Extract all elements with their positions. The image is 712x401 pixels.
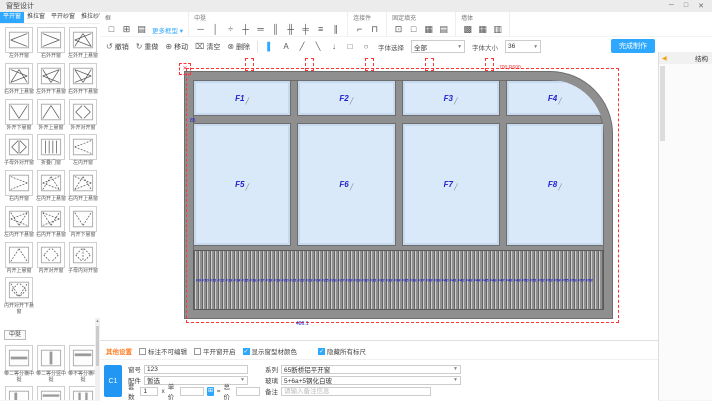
chevron-down-icon: ▼ xyxy=(453,366,458,372)
selection-tick xyxy=(425,58,434,71)
window-type-item[interactable]: 外开下悬窗 xyxy=(4,99,34,132)
window-type-label: 右内开窗 xyxy=(4,197,34,203)
glass-label: 玻璃 xyxy=(265,375,278,385)
edit-mark-icon: ╱ xyxy=(558,98,562,105)
structure-panel-title: 结构 xyxy=(695,53,712,63)
frame-interior: F1╱F2╱F3╱F4╱ F5╱F6╱F7╱F8╱ F9 F10 F11 F12… xyxy=(193,80,604,310)
mullion-type-label: 带二等分竖中挺 xyxy=(36,372,66,384)
backslash-line-tool-icon[interactable]: ╲ xyxy=(313,42,323,51)
multiply-sign: x xyxy=(161,388,164,395)
wall-brick-icon[interactable]: ▦ xyxy=(476,23,489,36)
window-type-item[interactable]: 内开对开窗 xyxy=(36,242,66,275)
window-type-item[interactable]: 内开上悬窗 xyxy=(4,242,34,275)
font-size-dropdown[interactable]: 36 ▼ xyxy=(505,40,541,53)
panel-label: F1 xyxy=(235,94,244,103)
move-button[interactable]: ⊕移动 xyxy=(165,42,188,52)
action-label: 重做 xyxy=(144,42,158,52)
window-type-item[interactable]: 右外开下悬窗 xyxy=(68,63,98,96)
mullion-type-thumbnail xyxy=(5,345,33,371)
toolbar-group-caption: 框 xyxy=(105,13,183,22)
corner-dimension-text: 700,R600 xyxy=(499,65,521,71)
panel-label: F2 xyxy=(339,94,348,103)
toolbar-group-caption: 墙体 xyxy=(461,13,504,22)
window-type-label: 子母内对开窗 xyxy=(68,269,98,275)
window-type-thumbnail xyxy=(5,27,33,53)
checkbox-icon xyxy=(194,348,201,355)
sidebar-tab[interactable]: 推拉窗 xyxy=(24,12,48,23)
toolbar-group-caption: 中挺 xyxy=(194,13,342,22)
window-tag-badge: C1 xyxy=(104,365,122,397)
action-buttons: ↺撤销↻重做⊕移动⌧清空⊗删除 xyxy=(106,42,250,52)
calc-icon[interactable]: ⊞ xyxy=(207,387,214,396)
fixed-panel-icon[interactable]: □ xyxy=(407,23,420,36)
font-select-dropdown[interactable]: 全部 ▼ xyxy=(411,40,465,53)
frame-preset-icon[interactable]: ▤ xyxy=(135,23,148,36)
finish-button[interactable]: 完成制作 xyxy=(611,39,655,53)
total-label: 总价 xyxy=(224,381,233,401)
fill-hatch-icon[interactable]: ▦ xyxy=(422,23,435,36)
undo-button[interactable]: ↺撤销 xyxy=(106,42,129,52)
window-type-item[interactable]: 左外开上悬窗 xyxy=(68,27,98,60)
mullion-double-horizontal-plus-icon[interactable]: ╪ xyxy=(299,23,312,36)
properties-panel: 其他设置 标注不可编辑平开窗开启✓显示窗型材颜色✓隐藏所有标尺 C1 窗号 配件… xyxy=(100,340,658,401)
glass-panel-F4[interactable]: F4╱ xyxy=(506,80,604,116)
mullion-type-thumbnail xyxy=(69,345,97,371)
mullion-divide-icon[interactable]: ÷ xyxy=(224,23,237,36)
remark-input[interactable] xyxy=(281,387,431,396)
mullion-type-item[interactable]: 带不等分竖中挺 xyxy=(4,386,34,400)
fill-lines-icon[interactable]: ▤ xyxy=(437,23,450,36)
glass-panel-F5[interactable]: F5╱ xyxy=(193,123,291,246)
selection-tick xyxy=(245,58,254,71)
mullion-triple-icon[interactable]: ≡ xyxy=(314,23,327,36)
structure-panel-scrollbar[interactable] xyxy=(660,66,665,141)
circle-tool-icon[interactable]: ○ xyxy=(361,42,371,51)
display-option-checkbox[interactable]: ✓隐藏所有标尺 xyxy=(318,346,366,356)
selection-tick xyxy=(305,58,314,71)
clear-button[interactable]: ⌧清空 xyxy=(195,42,220,52)
window-type-item[interactable]: 子母外对开窗 xyxy=(4,134,34,167)
mullion-type-thumbnail xyxy=(37,386,65,400)
wall-grid-icon[interactable]: ▩ xyxy=(461,23,474,36)
settings-label: 其他设置 xyxy=(106,346,132,356)
window-type-item[interactable]: 右外开上悬窗 xyxy=(4,63,34,96)
window-type-item[interactable]: 折叠门窗 xyxy=(36,134,66,167)
fixed-glass-icon[interactable]: ⊡ xyxy=(392,23,405,36)
font-select-label: 字体选择 xyxy=(378,42,404,52)
window-type-label: 右外开窗 xyxy=(36,54,66,60)
louver-panel[interactable]: F9 F10 F11 F12 F13 F14 F15 F16 F17 F18 F… xyxy=(193,250,604,310)
window-type-thumbnail xyxy=(5,206,33,232)
window-type-thumbnail xyxy=(5,242,33,268)
checkbox-label: 显示窗型材颜色 xyxy=(252,346,298,356)
toolbar-group-框: 框□⊞▤更多框型 ▾ xyxy=(100,12,189,36)
chevron-down-icon: ▼ xyxy=(533,44,538,50)
window-no-label: 窗号 xyxy=(128,364,141,374)
mullion-type-item[interactable]: 带三等分横中挺 xyxy=(36,386,66,400)
font-size-label: 字体大小 xyxy=(472,42,498,52)
window-type-item[interactable]: 右内开上悬窗 xyxy=(68,170,98,203)
window-type-thumbnail xyxy=(37,99,65,125)
toolbar-group-墙体: 墙体▩▦▥ xyxy=(456,12,510,36)
slash-line-tool-icon[interactable]: ╱ xyxy=(297,42,307,51)
mullion-section-header: 中挺 xyxy=(4,323,98,341)
toolbar-divider xyxy=(257,41,258,53)
mullion-double-vertical-icon[interactable]: ║ xyxy=(269,23,282,36)
window-type-label: 子母外对开窗 xyxy=(4,161,34,167)
display-option-checkbox[interactable]: ✓显示窗型材颜色 xyxy=(243,346,298,356)
form-left-column: 窗号 配件 暂选 ▼ 套数 x 单价 ⊞ = 总价 xyxy=(128,364,260,397)
panel-label: F8 xyxy=(548,180,557,189)
mullion-type-thumbnail xyxy=(69,386,97,400)
series-label: 系列 xyxy=(265,364,278,374)
edit-mark-icon: ╱ xyxy=(245,184,249,191)
window-type-item[interactable]: 左内开上悬窗 xyxy=(36,170,66,203)
panel-label: F5 xyxy=(235,180,244,189)
window-frame[interactable]: F1╱F2╱F3╱F4╱ F5╱F6╱F7╱F8╱ F9 F10 F11 F12… xyxy=(185,72,612,318)
checkbox-icon xyxy=(139,348,146,355)
window-type-label: 折叠门窗 xyxy=(36,161,66,167)
louver-panel-labels: F9 F10 F11 F12 F13 F14 F15 F16 F17 F18 F… xyxy=(196,278,601,283)
window-type-label: 右内开下悬窗 xyxy=(36,233,66,239)
more-frames-link[interactable]: 更多框型 ▾ xyxy=(152,25,183,35)
mullion-type-label: 带不等分横中挺 xyxy=(68,372,98,384)
window-type-thumbnail xyxy=(5,63,33,89)
wall-block-icon[interactable]: ▥ xyxy=(491,23,504,36)
window-type-thumbnail xyxy=(37,134,65,160)
toolbar-group-icons: □⊞▤更多框型 ▾ xyxy=(105,23,183,36)
window-type-label: 左内开下悬窗 xyxy=(4,233,34,239)
window-type-label: 内开对开窗 xyxy=(36,269,66,275)
window-type-item[interactable]: 右外开窗 xyxy=(36,27,66,60)
design-canvas[interactable]: F1╱F2╱F3╱F4╱ F5╱F6╱F7╱F8╱ F9 F10 F11 F12… xyxy=(100,56,658,340)
window-type-label: 内开对开下悬窗 xyxy=(4,304,34,316)
checkbox-label: 标注不可编辑 xyxy=(148,346,187,356)
checkbox-label: 隐藏所有标尺 xyxy=(327,346,366,356)
window-type-item[interactable]: 子母内对开窗 xyxy=(68,242,98,275)
window-type-item[interactable]: 内开对开下悬窗 xyxy=(4,277,34,316)
action-label: 撤销 xyxy=(115,42,129,52)
total-input[interactable] xyxy=(236,387,260,396)
action-label: 清空 xyxy=(206,42,220,52)
structure-panel: ◀ 结构 xyxy=(658,52,712,400)
glass-panel-F2[interactable]: F2╱ xyxy=(297,80,395,116)
chevron-down-icon: ▼ xyxy=(240,377,245,383)
window-type-thumbnail xyxy=(5,99,33,125)
unit-price-input[interactable] xyxy=(180,387,204,396)
text-tool-icon[interactable]: A xyxy=(281,42,291,51)
window-controls: ─ □ ✕ xyxy=(669,2,712,10)
glass-panel-F8[interactable]: F8╱ xyxy=(506,123,604,246)
window-type-item[interactable]: 左外开窗 xyxy=(4,27,34,60)
toolbar-group-caption: 连接件 xyxy=(353,13,381,22)
window-type-label: 右外开上悬窗 xyxy=(4,90,34,96)
window-type-label: 内开上悬窗 xyxy=(4,269,34,275)
font-select-value: 全部 xyxy=(414,42,427,52)
window-type-thumbnail xyxy=(37,27,65,53)
frame-sash-icon[interactable]: ⊞ xyxy=(120,23,133,36)
action-label: 删除 xyxy=(236,42,250,52)
mullion-multi-icon[interactable]: ∥ xyxy=(329,23,342,36)
toolbar-group-icons: ─│÷┼═║╫╪≡∥ xyxy=(194,23,342,36)
window-no-input[interactable] xyxy=(144,365,248,374)
window-type-item[interactable]: 左外开下悬窗 xyxy=(36,63,66,96)
panel-label: F3 xyxy=(444,94,453,103)
edit-mark-icon: ╱ xyxy=(350,184,354,191)
mullion-section-title: 中挺 xyxy=(4,330,26,340)
clear-button-icon: ⌧ xyxy=(195,42,204,51)
sets-input[interactable] xyxy=(140,387,158,396)
window-type-label: 右内开上悬窗 xyxy=(68,197,98,203)
window-type-thumbnail xyxy=(69,242,97,268)
frame-basic-icon[interactable]: □ xyxy=(105,23,118,36)
delete-button-icon: ⊗ xyxy=(227,42,234,51)
collapse-left-icon[interactable]: ◀ xyxy=(659,55,667,62)
mullion-type-label: 带二等分横中挺 xyxy=(4,372,34,384)
window-type-thumbnail xyxy=(37,206,65,232)
mullion-type-thumbnail xyxy=(5,386,33,400)
toolbar-group-icons: ⌐⊓ xyxy=(353,23,381,36)
toolbar-group-中挺: 中挺─│÷┼═║╫╪≡∥ xyxy=(189,12,348,36)
selection-tick xyxy=(365,58,374,71)
main-toolbar: 框□⊞▤更多框型 ▾中挺─│÷┼═║╫╪≡∥连接件⌐⊓固定填充⊡□▦▤墙体▩▦▥… xyxy=(100,12,712,57)
window-type-sidebar: 平开窗推拉窗平开纱窗推拉纱窗 左外开窗右外开窗左外开上悬窗右外开上悬窗左外开下悬… xyxy=(0,12,101,400)
selection-tick xyxy=(485,58,494,71)
mullion-horizontal-icon[interactable]: ─ xyxy=(194,23,207,36)
window-type-thumbnail xyxy=(5,277,33,303)
mullion-vertical-icon[interactable]: │ xyxy=(209,23,222,36)
color-bar-icon[interactable]: ▌ xyxy=(265,42,275,51)
mullion-type-item[interactable]: 带二等分横中挺 xyxy=(4,345,34,384)
checkbox-label: 平开窗开启 xyxy=(203,346,236,356)
window-type-label: 左内开窗 xyxy=(68,161,98,167)
delete-button[interactable]: ⊗删除 xyxy=(227,42,250,52)
series-dropdown[interactable]: 65断桥铝平开窗 ▼ xyxy=(281,365,461,374)
arrow-tool-icon[interactable]: ↓ xyxy=(329,42,339,51)
window-type-item[interactable]: 左内开窗 xyxy=(68,134,98,167)
edit-mark-icon: ╱ xyxy=(245,98,249,105)
app-title: 窗型设计 xyxy=(0,1,34,11)
toolbar-group-固定填充: 固定填充⊡□▦▤ xyxy=(387,12,456,36)
top-panel-row: F1╱F2╱F3╱F4╱ xyxy=(193,80,604,116)
window-type-thumbnail xyxy=(5,170,33,196)
glass-panel-F7[interactable]: F7╱ xyxy=(402,123,500,246)
draw-tools: ▌A╱╲↓□○ xyxy=(265,42,371,51)
mullion-cross-icon[interactable]: ┼ xyxy=(239,23,252,36)
checkbox-icon: ✓ xyxy=(243,348,250,355)
window-type-thumbnail xyxy=(69,63,97,89)
structure-panel-header[interactable]: ◀ 结构 xyxy=(659,52,712,64)
window-type-label: 外开下悬窗 xyxy=(4,126,34,132)
toolbar-group-icons: ▩▦▥ xyxy=(461,23,504,36)
glass-panel-F6[interactable]: F6╱ xyxy=(297,123,395,246)
window-type-label: 外开对开窗 xyxy=(68,126,98,132)
accessory-value: 暂选 xyxy=(147,375,160,385)
remark-label: 备注 xyxy=(265,386,278,396)
bottom-panel-row: F5╱F6╱F7╱F8╱ xyxy=(193,123,604,246)
minimize-icon[interactable]: ─ xyxy=(669,2,674,10)
move-button-icon: ⊕ xyxy=(165,42,172,51)
window-type-item[interactable]: 外开对开窗 xyxy=(68,99,98,132)
window-type-label: 左外开上悬窗 xyxy=(68,54,98,60)
close-icon[interactable]: ✕ xyxy=(698,2,704,10)
mullion-type-item[interactable]: 带二等分竖中挺 xyxy=(36,345,66,384)
window-type-label: 内开下悬窗 xyxy=(68,233,98,239)
panel-label: F4 xyxy=(548,94,557,103)
panel-label: F6 xyxy=(339,180,348,189)
checkbox-icon: ✓ xyxy=(318,348,325,355)
sidebar-tab[interactable]: 平开纱窗 xyxy=(48,12,78,23)
chevron-down-icon: ▼ xyxy=(453,377,458,383)
window-type-item[interactable]: 右内开下悬窗 xyxy=(36,206,66,239)
equals-sign: = xyxy=(217,388,221,395)
glass-panel-F3[interactable]: F3╱ xyxy=(402,80,500,116)
toolbar-group-caption: 固定填充 xyxy=(392,13,450,22)
edit-mark-icon: ╱ xyxy=(454,98,458,105)
mullion-type-item[interactable]: 带三等分竖中挺 xyxy=(68,386,98,400)
redo-button-icon: ↻ xyxy=(136,42,143,51)
sidebar-tabs: 平开窗推拉窗平开纱窗推拉纱窗 xyxy=(0,12,100,24)
window-type-label: 左外开窗 xyxy=(4,54,34,60)
glass-dropdown[interactable]: 5+6a+5钢化白玻 ▼ xyxy=(281,376,461,385)
window-type-item[interactable]: 右内开窗 xyxy=(4,170,34,203)
window-type-label: 左外开下悬窗 xyxy=(36,90,66,96)
form-right-column: 系列 65断桥铝平开窗 ▼ 玻璃 5+6a+5钢化白玻 ▼ 备注 xyxy=(265,364,485,397)
mullion-double-vertical-plus-icon[interactable]: ╫ xyxy=(284,23,297,36)
display-options-row: 其他设置 标注不可编辑平开窗开启✓显示窗型材颜色✓隐藏所有标尺 xyxy=(100,341,658,360)
sidebar-tab[interactable]: 平开窗 xyxy=(0,12,24,23)
toolbar-group-连接件: 连接件⌐⊓ xyxy=(348,12,387,36)
mullion-type-thumbnail xyxy=(37,345,65,371)
panel-label: F7 xyxy=(444,180,453,189)
series-value: 65断桥铝平开窗 xyxy=(284,364,330,374)
edit-mark-icon: ╱ xyxy=(350,98,354,105)
window-type-item[interactable]: 内开下悬窗 xyxy=(68,206,98,239)
window-type-label: 右外开下悬窗 xyxy=(68,90,98,96)
display-option-checkbox[interactable]: 标注不可编辑 xyxy=(139,346,187,356)
window-type-thumbnail xyxy=(37,242,65,268)
corner-connector-icon[interactable]: ⌐ xyxy=(353,23,366,36)
maximize-icon[interactable]: □ xyxy=(684,2,688,10)
sets-label: 套数 xyxy=(128,381,137,401)
font-size-value: 36 xyxy=(508,43,515,50)
window-type-thumbnail xyxy=(69,170,97,196)
undo-button-icon: ↺ xyxy=(106,42,113,51)
window-type-label: 左内开上悬窗 xyxy=(36,197,66,203)
glass-panel-F1[interactable]: F1╱ xyxy=(193,80,291,116)
window-type-thumbnail xyxy=(5,134,33,160)
window-type-thumbnail xyxy=(37,63,65,89)
mullion-double-horizontal-icon[interactable]: ═ xyxy=(254,23,267,36)
edit-mark-icon: ╱ xyxy=(558,184,562,191)
sidebar-tab[interactable]: 推拉纱窗 xyxy=(78,12,101,23)
joint-connector-icon[interactable]: ⊓ xyxy=(368,23,381,36)
window-type-thumbnail xyxy=(69,27,97,53)
mullion-type-item[interactable]: 带不等分横中挺 xyxy=(68,345,98,384)
action-label: 移动 xyxy=(174,42,188,52)
window-type-list: 左外开窗右外开窗左外开上悬窗右外开上悬窗左外开下悬窗右外开下悬窗外开下悬窗外开上… xyxy=(0,24,100,400)
scroll-thumb[interactable] xyxy=(96,326,99,366)
glass-value: 5+6a+5钢化白玻 xyxy=(284,375,332,385)
window-type-item[interactable]: 左内开下悬窗 xyxy=(4,206,34,239)
selection-corner-handle[interactable]: ✕ xyxy=(179,63,191,75)
window-type-thumbnail xyxy=(69,134,97,160)
window-type-label: 外开上悬窗 xyxy=(36,126,66,132)
window-type-item[interactable]: 外开上悬窗 xyxy=(36,99,66,132)
toolbar-row-groups: 框□⊞▤更多框型 ▾中挺─│÷┼═║╫╪≡∥连接件⌐⊓固定填充⊡□▦▤墙体▩▦▥ xyxy=(100,12,712,36)
unit-price-label: 单价 xyxy=(168,381,177,401)
window-type-thumbnail xyxy=(69,99,97,125)
edit-mark-icon: ╱ xyxy=(454,184,458,191)
rect-tool-icon[interactable]: □ xyxy=(345,42,355,51)
window-type-thumbnail xyxy=(37,170,65,196)
bottom-dimension-text: 486.1 xyxy=(296,321,309,327)
window-type-thumbnail xyxy=(69,206,97,232)
redo-button[interactable]: ↻重做 xyxy=(136,42,159,52)
display-option-checkbox[interactable]: 平开窗开启 xyxy=(194,346,236,356)
chevron-down-icon: ▼ xyxy=(457,44,462,50)
left-dimension-text: 85 xyxy=(190,118,196,124)
toolbar-group-icons: ⊡□▦▤ xyxy=(392,23,450,36)
